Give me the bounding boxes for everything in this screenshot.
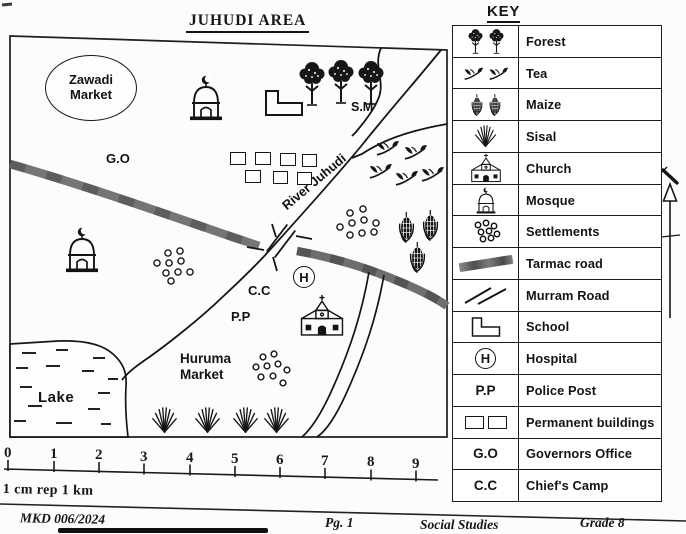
huruma-line2: Market xyxy=(180,367,231,383)
scale-tick: 8 xyxy=(367,454,375,471)
key-label: Police Post xyxy=(519,375,661,406)
permanent-building-icon xyxy=(230,152,246,165)
key-title: KEY xyxy=(487,3,520,23)
grade-label: Grade 8 xyxy=(580,515,625,531)
maize-cob-icon xyxy=(407,242,428,273)
chiefs-camp-abbrev: C.C xyxy=(453,470,519,501)
key-label: Permanent buildings xyxy=(519,407,661,438)
murram-road-lines-icon xyxy=(453,280,519,311)
sisal-plant-icon xyxy=(151,407,178,434)
mosque-icon xyxy=(453,185,519,216)
scale-tick: 5 xyxy=(231,451,239,468)
key-label: Church xyxy=(519,153,661,184)
police-post-label: P.P xyxy=(231,309,250,324)
scale-tick: 3 xyxy=(140,449,148,466)
tea-sprig-icon xyxy=(368,162,393,180)
forest-trees-icon xyxy=(453,26,519,57)
permanent-building-icon xyxy=(245,170,261,183)
hospital-circle-icon: H xyxy=(453,343,519,374)
key-row-murram: Murram Road xyxy=(453,280,661,312)
scan-artifact xyxy=(2,4,12,5)
school-lshape-icon xyxy=(453,312,519,343)
lake-label: Lake xyxy=(38,389,74,406)
permanent-buildings-icon xyxy=(453,407,519,438)
sisal-plant-icon xyxy=(453,121,519,152)
tea-sprig-icon xyxy=(420,165,445,183)
permanent-building-icon xyxy=(280,153,296,166)
tea-sprig-icon xyxy=(394,169,419,187)
tea-sprig-icon xyxy=(453,58,519,89)
governors-office-label: G.O xyxy=(106,151,130,166)
scale-tick: 6 xyxy=(276,452,284,469)
scale-tick: 7 xyxy=(321,453,329,470)
scale-tick: 1 xyxy=(50,446,58,463)
chiefs-camp-label: C.C xyxy=(248,283,270,298)
scan-edge-artifact xyxy=(58,528,268,533)
key-row-hospital: H Hospital xyxy=(453,343,661,375)
key-row-permanent-buildings: Permanent buildings xyxy=(453,407,661,439)
scale-caption: 1 cm rep 1 km xyxy=(3,482,94,500)
key-label: Forest xyxy=(519,26,661,57)
maize-cob-icon xyxy=(396,212,417,243)
maize-cob-icon xyxy=(420,210,441,241)
tea-sprig-icon xyxy=(403,143,428,161)
key-row-police-post: P.P Police Post xyxy=(453,375,661,407)
hospital-letter: H xyxy=(481,351,490,366)
map-title: JUHUDI AREA xyxy=(186,12,309,33)
school-icon xyxy=(264,89,304,117)
permanent-building-icon xyxy=(302,154,317,167)
zawadi-market-label: Zawadi Market xyxy=(45,55,137,121)
scale-tick: 9 xyxy=(412,456,420,473)
key-row-governors-office: G.O Governors Office xyxy=(453,439,661,471)
scale-tick: 4 xyxy=(186,450,194,467)
page-number: Pg. 1 xyxy=(325,515,354,531)
sisal-plant-icon xyxy=(232,407,259,434)
key-row-church: Church xyxy=(453,153,661,185)
sisal-plant-icon xyxy=(194,407,221,434)
hospital-letter: H xyxy=(299,270,308,285)
zawadi-line2: Market xyxy=(70,88,112,103)
key-row-sisal: Sisal xyxy=(453,121,661,153)
huruma-line1: Huruma xyxy=(180,351,231,367)
scanned-map-worksheet: JUHUDI AREA Zawadi Market G.O S.M River … xyxy=(0,0,686,534)
key-label: Mosque xyxy=(519,185,661,216)
settlements-circles-icon xyxy=(453,216,519,247)
key-label: Tea xyxy=(519,58,661,89)
governors-office-abbrev: G.O xyxy=(453,439,519,470)
key-label: Chief's Camp xyxy=(519,470,661,501)
church-icon xyxy=(453,153,519,184)
police-post-abbrev: P.P xyxy=(453,375,519,406)
mosque-icon xyxy=(184,73,228,121)
key-row-tea: Tea xyxy=(453,58,661,90)
subject-label: Social Studies xyxy=(420,517,498,533)
key-row-forest: Forest xyxy=(453,26,661,58)
key-label: Governors Office xyxy=(519,439,661,470)
key-label: Settlements xyxy=(519,216,661,247)
key-row-settlements: Settlements xyxy=(453,216,661,248)
key-row-school: School xyxy=(453,312,661,344)
key-label: Maize xyxy=(519,89,661,120)
sisal-plant-icon xyxy=(263,407,290,434)
sm-label: S.M xyxy=(351,100,373,114)
zawadi-line1: Zawadi xyxy=(69,73,113,88)
key-label: Sisal xyxy=(519,121,661,152)
key-label: Hospital xyxy=(519,343,661,374)
huruma-market-label: Huruma Market xyxy=(180,351,231,384)
scale-tick: 0 xyxy=(4,445,12,462)
mosque-icon xyxy=(60,225,104,273)
key-row-mosque: Mosque xyxy=(453,185,661,217)
maize-cob-icon xyxy=(453,89,519,120)
key-panel: Forest Tea Maize Sisal Church xyxy=(452,25,662,502)
permanent-building-icon xyxy=(273,171,288,184)
key-label: School xyxy=(519,312,661,343)
permanent-building-icon xyxy=(255,152,271,165)
tea-sprig-icon xyxy=(375,139,400,157)
hospital-symbol: H xyxy=(293,266,315,288)
tarmac-road-band-icon xyxy=(453,248,519,279)
scale-tick: 2 xyxy=(95,447,103,464)
church-icon xyxy=(295,294,349,337)
key-label: Tarmac road xyxy=(519,248,661,279)
doc-code: MKD 006/2024 xyxy=(20,510,105,527)
north-arrow-icon xyxy=(661,167,680,318)
key-label: Murram Road xyxy=(519,280,661,311)
key-row-tarmac: Tarmac road xyxy=(453,248,661,280)
key-row-chiefs-camp: C.C Chief's Camp xyxy=(453,470,661,501)
key-row-maize: Maize xyxy=(453,89,661,121)
